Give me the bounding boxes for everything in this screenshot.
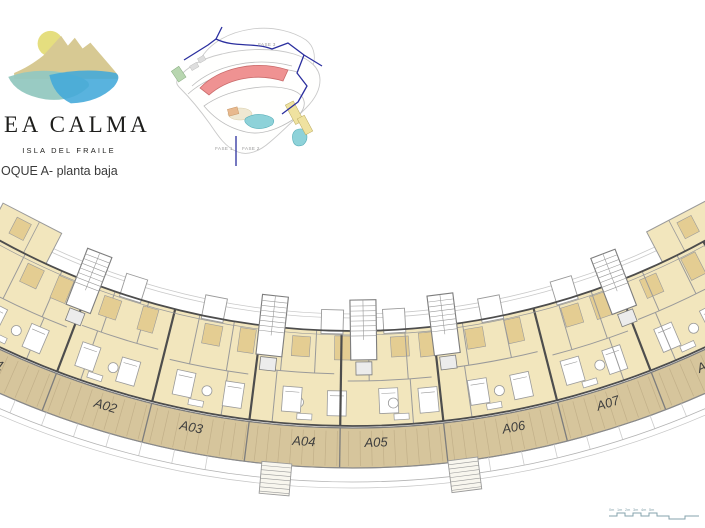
floorplan-drawing: A01A02A03A04A05A06A07A08 (0, 0, 705, 528)
scale-label: 4m (641, 508, 646, 512)
scale-bar: 0m1m2m3m4m5m (608, 502, 702, 524)
scale-label: 0m (609, 508, 614, 512)
scale-bar-steps (609, 513, 699, 519)
scale-bar-labels: 0m1m2m3m4m5m (609, 508, 654, 512)
terrace-stairs (259, 461, 292, 495)
plan-sheet: SEA CALMA ISLA DEL FRAILE OQUE A- planta… (0, 0, 705, 528)
scale-label: 1m (617, 508, 622, 512)
scale-label: 2m (625, 508, 630, 512)
terrace-stairs (448, 457, 482, 493)
unit-label-a04: A04 (291, 433, 316, 449)
scale-label: 3m (633, 508, 638, 512)
unit-label-a05: A05 (363, 434, 388, 450)
scale-label: 5m (649, 508, 654, 512)
